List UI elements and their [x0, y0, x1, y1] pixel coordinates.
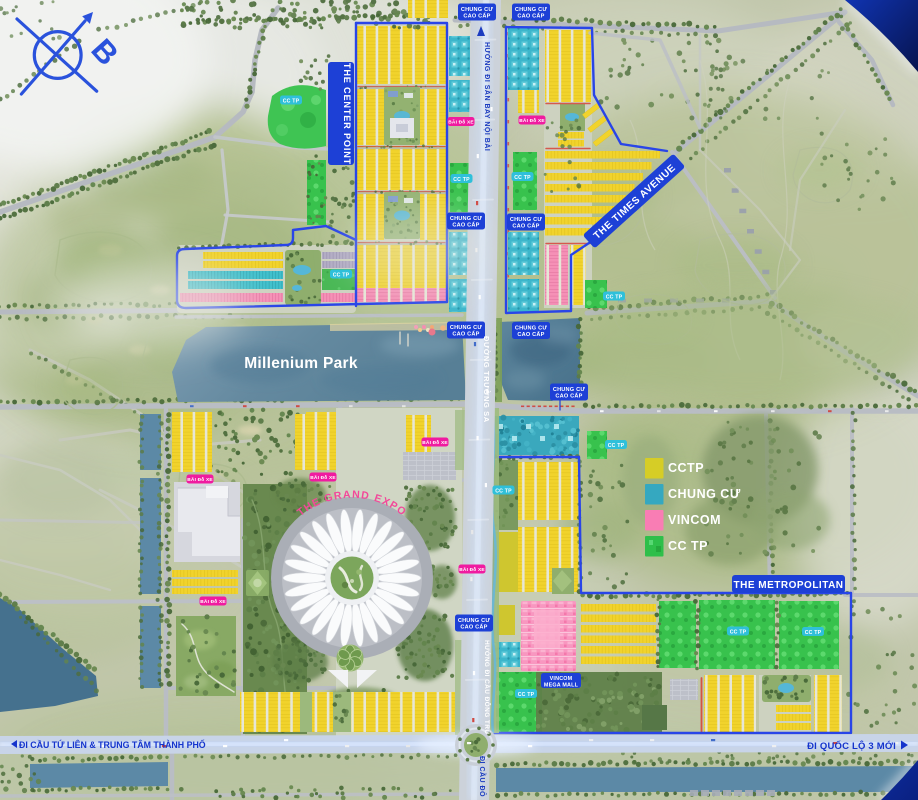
svg-text:CC TP: CC TP	[333, 273, 350, 279]
svg-text:CC TP: CC TP	[283, 99, 300, 105]
svg-text:BÃI Ðỗ XE: BÃI Ðỗ XE	[200, 598, 226, 605]
svg-text:CC TP: CC TP	[606, 295, 623, 301]
svg-text:BÃI Ðỗ XE: BÃI Ðỗ XE	[187, 476, 213, 483]
svg-text:BÃI Ðỗ XE: BÃI Ðỗ XE	[422, 439, 448, 446]
svg-text:CAO CẤP: CAO CẤP	[463, 13, 490, 20]
svg-text:THE METROPOLITAN: THE METROPOLITAN	[733, 580, 843, 591]
svg-text:CC TP: CC TP	[730, 630, 747, 636]
svg-text:ĐI QUỐC LỘ 3 MỚI: ĐI QUỐC LỘ 3 MỚI	[807, 740, 896, 752]
svg-text:CAO CẤP: CAO CẤP	[460, 624, 487, 631]
svg-text:CC TP: CC TP	[805, 630, 822, 636]
svg-text:CHUNG CƯ: CHUNG CƯ	[553, 387, 586, 393]
svg-text:CHUNG CƯ: CHUNG CƯ	[668, 487, 741, 501]
svg-text:CC TP: CC TP	[668, 539, 708, 553]
svg-text:CHUNG CƯ: CHUNG CƯ	[461, 7, 494, 13]
svg-text:CAO CẤP: CAO CẤP	[452, 331, 479, 338]
svg-text:BÃI Ðỗ XE: BÃI Ðỗ XE	[310, 474, 336, 481]
svg-text:CC TP: CC TP	[608, 443, 625, 449]
svg-text:CC TP: CC TP	[495, 489, 512, 495]
svg-text:CC TP: CC TP	[518, 692, 535, 698]
svg-text:HƯỚNG ĐI SÂN BAY NỘI BÀI: HƯỚNG ĐI SÂN BAY NỘI BÀI	[483, 42, 492, 151]
svg-text:ĐI CẦU TỨ LIÊN & TRUNG TÂM THÀ: ĐI CẦU TỨ LIÊN & TRUNG TÂM THÀNH PHỐ	[19, 739, 206, 750]
svg-text:ĐƯỜNG TRƯỜNG SA: ĐƯỜNG TRƯỜNG SA	[482, 336, 491, 423]
svg-text:CC TP: CC TP	[453, 177, 470, 183]
svg-text:CAO CẤP: CAO CẤP	[517, 13, 544, 20]
svg-text:CAO CẤP: CAO CẤP	[517, 331, 544, 338]
svg-text:CAO CẤP: CAO CẤP	[555, 393, 582, 400]
svg-text:CAO CẤP: CAO CẤP	[452, 222, 479, 229]
svg-text:VINCOM: VINCOM	[550, 676, 573, 682]
svg-text:VINCOM: VINCOM	[668, 513, 721, 527]
svg-text:CAO CẤP: CAO CẤP	[512, 223, 539, 230]
svg-text:CHUNG CƯ: CHUNG CƯ	[450, 325, 483, 331]
svg-text:CC TP: CC TP	[514, 175, 531, 181]
svg-text:Millenium Park: Millenium Park	[244, 355, 358, 372]
svg-text:MEGA MALL: MEGA MALL	[544, 683, 579, 689]
svg-text:BÃI Ðỗ XE: BÃI Ðỗ XE	[448, 119, 474, 126]
svg-text:THE CENTER POINT: THE CENTER POINT	[342, 63, 352, 165]
svg-text:CHUNG CƯ: CHUNG CƯ	[515, 325, 548, 331]
svg-text:CHUNG CƯ: CHUNG CƯ	[515, 7, 548, 13]
svg-text:CHUNG CƯ: CHUNG CƯ	[450, 216, 483, 222]
svg-text:BÃI Ðỗ XE: BÃI Ðỗ XE	[459, 566, 485, 573]
svg-text:CHUNG CƯ: CHUNG CƯ	[510, 217, 543, 223]
svg-text:CCTP: CCTP	[668, 461, 704, 475]
svg-text:CHUNG CƯ: CHUNG CƯ	[458, 618, 491, 624]
svg-text:BÃI Ðỗ XE: BÃI Ðỗ XE	[519, 117, 545, 124]
